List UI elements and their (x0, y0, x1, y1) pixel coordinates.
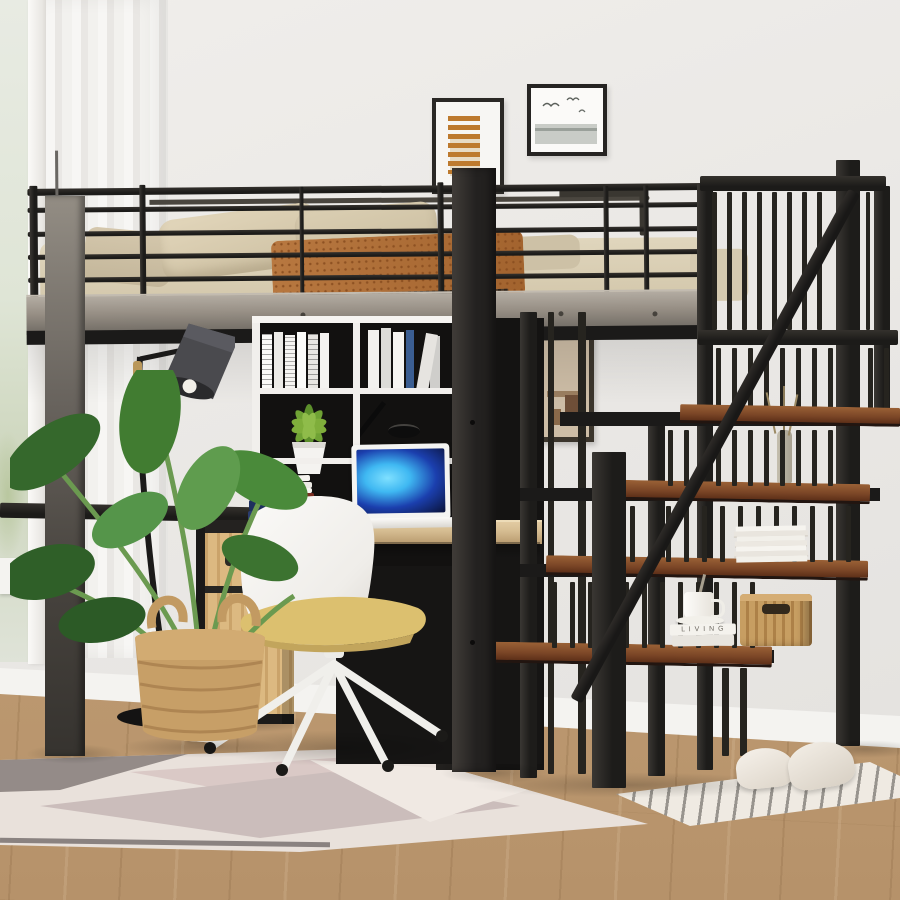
stair-back-bar (578, 312, 586, 774)
desk-lamp-head (388, 424, 420, 438)
room-scene: L I V I N G (0, 0, 900, 900)
beam-screw (558, 311, 563, 316)
post-screw (470, 640, 475, 645)
living-book: L I V I N G (670, 623, 736, 646)
beam-screw (652, 311, 657, 316)
guard-post-d (603, 186, 609, 298)
guard-post-left-end (29, 186, 38, 298)
stair-back-bar (548, 312, 554, 774)
basket-handle-slot (762, 604, 790, 614)
stair-tread-4 (680, 404, 900, 427)
living-book-spine-text: L I V I N G (681, 626, 725, 634)
stair-post-back-left (520, 312, 537, 778)
magazine-stack (734, 525, 809, 562)
bookcase-edge-top (252, 316, 468, 323)
wicker-basket (135, 598, 265, 741)
storage-basket (740, 594, 812, 646)
guard-post-c (437, 182, 444, 296)
stair-corner-post (836, 160, 860, 746)
landing-beam (698, 330, 898, 345)
basket-handle (222, 598, 256, 626)
post-screw (470, 420, 475, 425)
cubby-gray-books (368, 324, 456, 390)
headboard-hook (55, 151, 58, 201)
monstera-plant (10, 370, 310, 760)
coffee-cup-handle (711, 599, 725, 618)
bed-post-center (452, 168, 496, 772)
landing-top-rail (700, 176, 886, 191)
guard-post-e (643, 185, 649, 297)
guard-post-a (139, 185, 146, 297)
